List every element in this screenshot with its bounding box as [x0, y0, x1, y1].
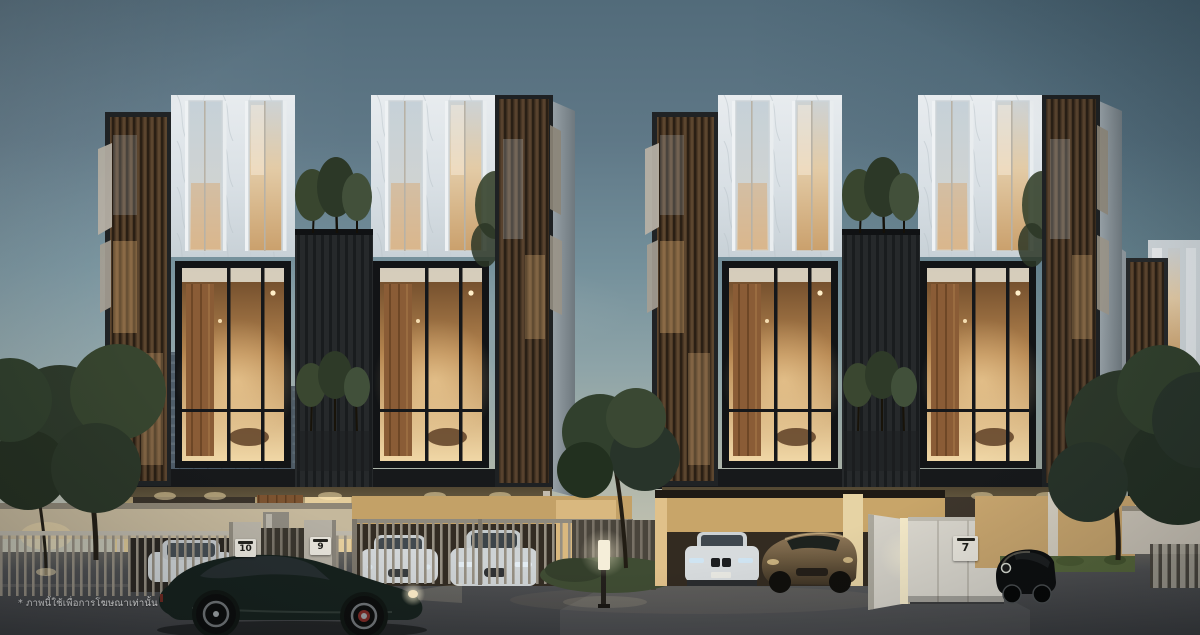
left-townhouse-cluster	[98, 95, 575, 563]
gate-number: 9	[317, 542, 323, 553]
gate-number: 7	[962, 541, 970, 555]
architectural-render: 10 9 7 * ภาพนี้ใช้เพื่อการโฆษณาเท่านั้น	[0, 0, 1200, 635]
headlight-glow	[408, 590, 418, 598]
gate-number-plaque-7: 7	[953, 536, 978, 561]
gate-number-plaque-9: 9	[310, 537, 331, 555]
gate-number: 10	[239, 544, 252, 555]
cluster-shape	[98, 95, 575, 563]
render-scene	[0, 0, 1200, 635]
disclaimer-text: * ภาพนี้ใช้เพื่อการโฆษณาเท่านั้น	[18, 596, 158, 611]
gate-number-plaque-10: 10	[235, 539, 256, 557]
